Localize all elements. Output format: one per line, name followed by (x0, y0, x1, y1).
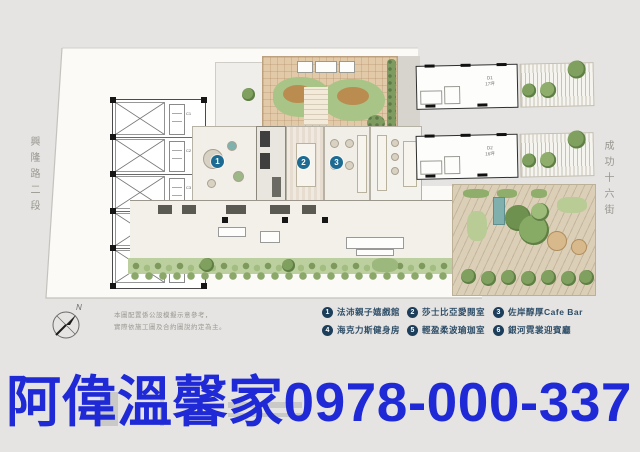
courtyard-garden (262, 56, 398, 136)
tree (461, 269, 476, 284)
plan-badge-1: 1 (211, 155, 224, 168)
seating-patio (547, 231, 567, 251)
lawn (557, 197, 587, 213)
lobby-hall (130, 200, 482, 259)
store-outline: D1 17坪 (416, 64, 519, 110)
shrub-bed (337, 87, 369, 105)
tree (200, 258, 214, 272)
tree (282, 259, 295, 272)
street-name-right: 成功十六街 (600, 140, 615, 260)
room-playroom (192, 126, 258, 204)
lawn (467, 211, 487, 241)
elevator-core (256, 126, 286, 204)
legend-label: 海克力斯健身房 (337, 324, 400, 336)
patio-furniture (339, 61, 355, 73)
site-plan-flyer: C1 C2 C3 C4 C5 (0, 0, 640, 452)
unit-vestibule (169, 141, 185, 172)
hedge (463, 189, 489, 198)
water-feature (493, 197, 505, 225)
legend-number-icon: 3 (493, 307, 504, 318)
tree (501, 270, 516, 285)
store-unit-1: D1 17坪 (415, 58, 594, 112)
tree (242, 88, 255, 101)
disclaimer-line-2: 實際依施工圖及合約圖說約定為主。 (114, 322, 226, 334)
unit-label: C3 (186, 186, 191, 191)
tree (521, 271, 536, 286)
hedge (531, 189, 547, 198)
legend-label: 法沛親子嬉戲館 (337, 306, 400, 318)
store-label: D2 16坪 (467, 145, 513, 158)
store-label: D1 17坪 (467, 75, 513, 88)
legend-number-icon: 5 (407, 325, 418, 336)
tree (561, 271, 576, 286)
tree (531, 203, 549, 221)
legend-number-icon: 4 (322, 325, 333, 336)
shrub-cluster (372, 258, 398, 272)
unit-label: C2 (186, 149, 191, 154)
tree (541, 270, 556, 285)
lounge-plaza (370, 126, 422, 204)
rear-garden (452, 184, 596, 296)
disclaimer-line-1: 本圖配置係公設模擬示意參考， (114, 310, 226, 322)
street-name-left: 興隆路二段 (26, 136, 41, 232)
plan-badge-3: 3 (330, 156, 343, 169)
legend-number-icon: 1 (322, 307, 333, 318)
legend-number-icon: 6 (493, 325, 504, 336)
compass-icon (49, 308, 83, 342)
legend-label: 佐岸醇厚Cafe Bar (508, 306, 583, 318)
legend-label: 輕盈柔波瑜珈室 (422, 324, 485, 336)
store-unit-2: D2 16坪 (415, 128, 594, 182)
legend-item-3: 3 佐岸醇厚Cafe Bar (493, 306, 583, 318)
legend-item-1: 1 法沛親子嬉戲館 (322, 306, 400, 318)
plan-badge-2: 2 (297, 156, 310, 169)
legend-item-5: 5 輕盈柔波瑜珈室 (407, 324, 485, 336)
unit-vestibule (169, 104, 185, 135)
disclaimer: 本圖配置係公設模擬示意參考， 實際依施工圖及合約圖說約定為主。 (114, 310, 226, 333)
legend-item-2: 2 莎士比亞愛閱室 (407, 306, 485, 318)
legend-label: 莎士比亞愛閱室 (422, 306, 485, 318)
contact-overlay-text: 阿偉溫馨家0978-000-337 (6, 374, 632, 432)
legend-item-6: 6 銀河霓裳迎賓廳 (493, 324, 571, 336)
unit-label: C1 (186, 112, 191, 117)
legend-label: 銀河霓裳迎賓廳 (508, 324, 571, 336)
seating-patio (571, 239, 587, 255)
legend-item-4: 4 海克力斯健身房 (322, 324, 400, 336)
hedge-row (128, 272, 480, 280)
store-outline: D2 16坪 (416, 134, 519, 180)
patio-furniture (297, 61, 313, 73)
compass-north-label: N (76, 303, 82, 312)
garden-steps (304, 87, 328, 125)
hedge (387, 59, 396, 133)
legend-number-icon: 2 (407, 307, 418, 318)
lift-shaft-x-icon (115, 102, 165, 135)
tree (481, 271, 496, 286)
patio-furniture (315, 61, 337, 73)
lift-shaft-x-icon (115, 139, 165, 172)
tree (579, 270, 594, 285)
